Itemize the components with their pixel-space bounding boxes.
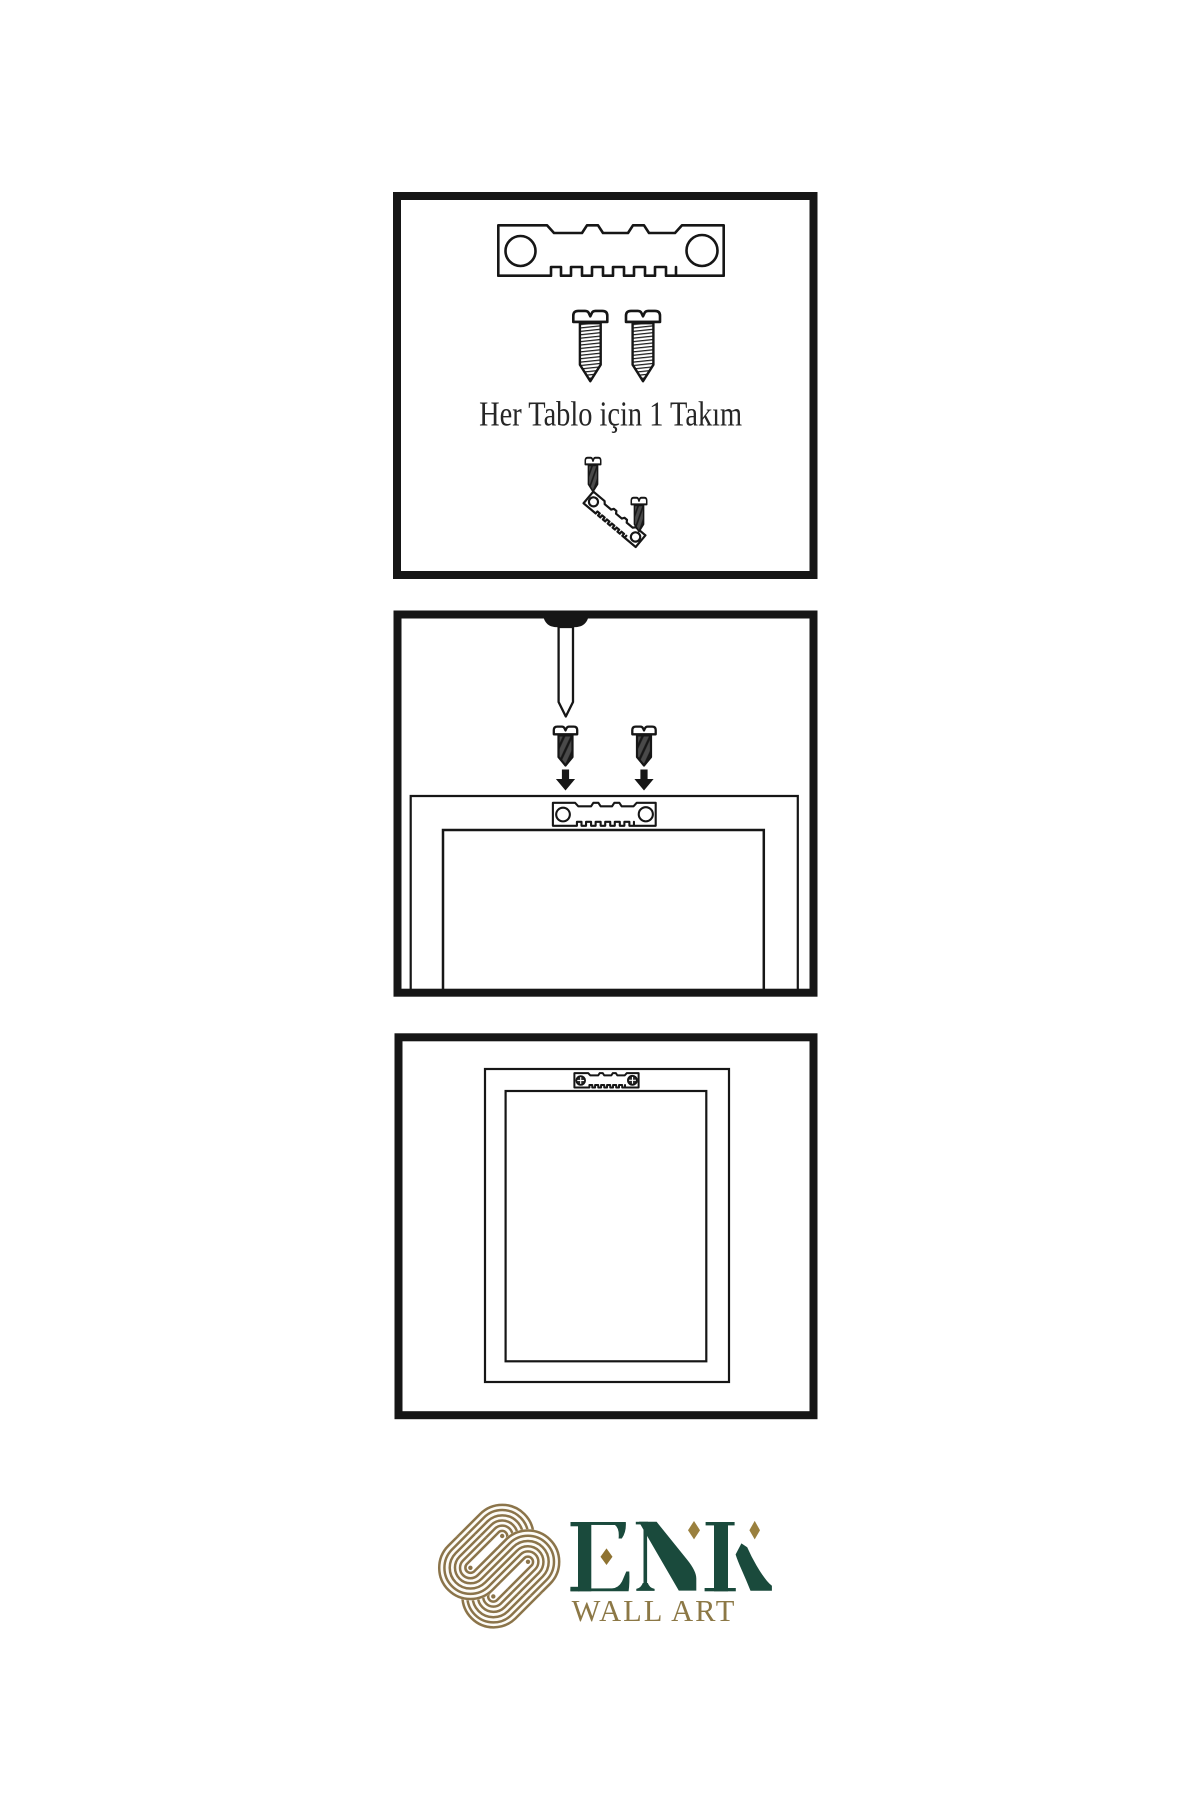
svg-text:WALL ART: WALL ART bbox=[572, 1594, 737, 1628]
svg-text:Her Tablo için 1 Takım: Her Tablo için 1 Takım bbox=[479, 394, 742, 433]
